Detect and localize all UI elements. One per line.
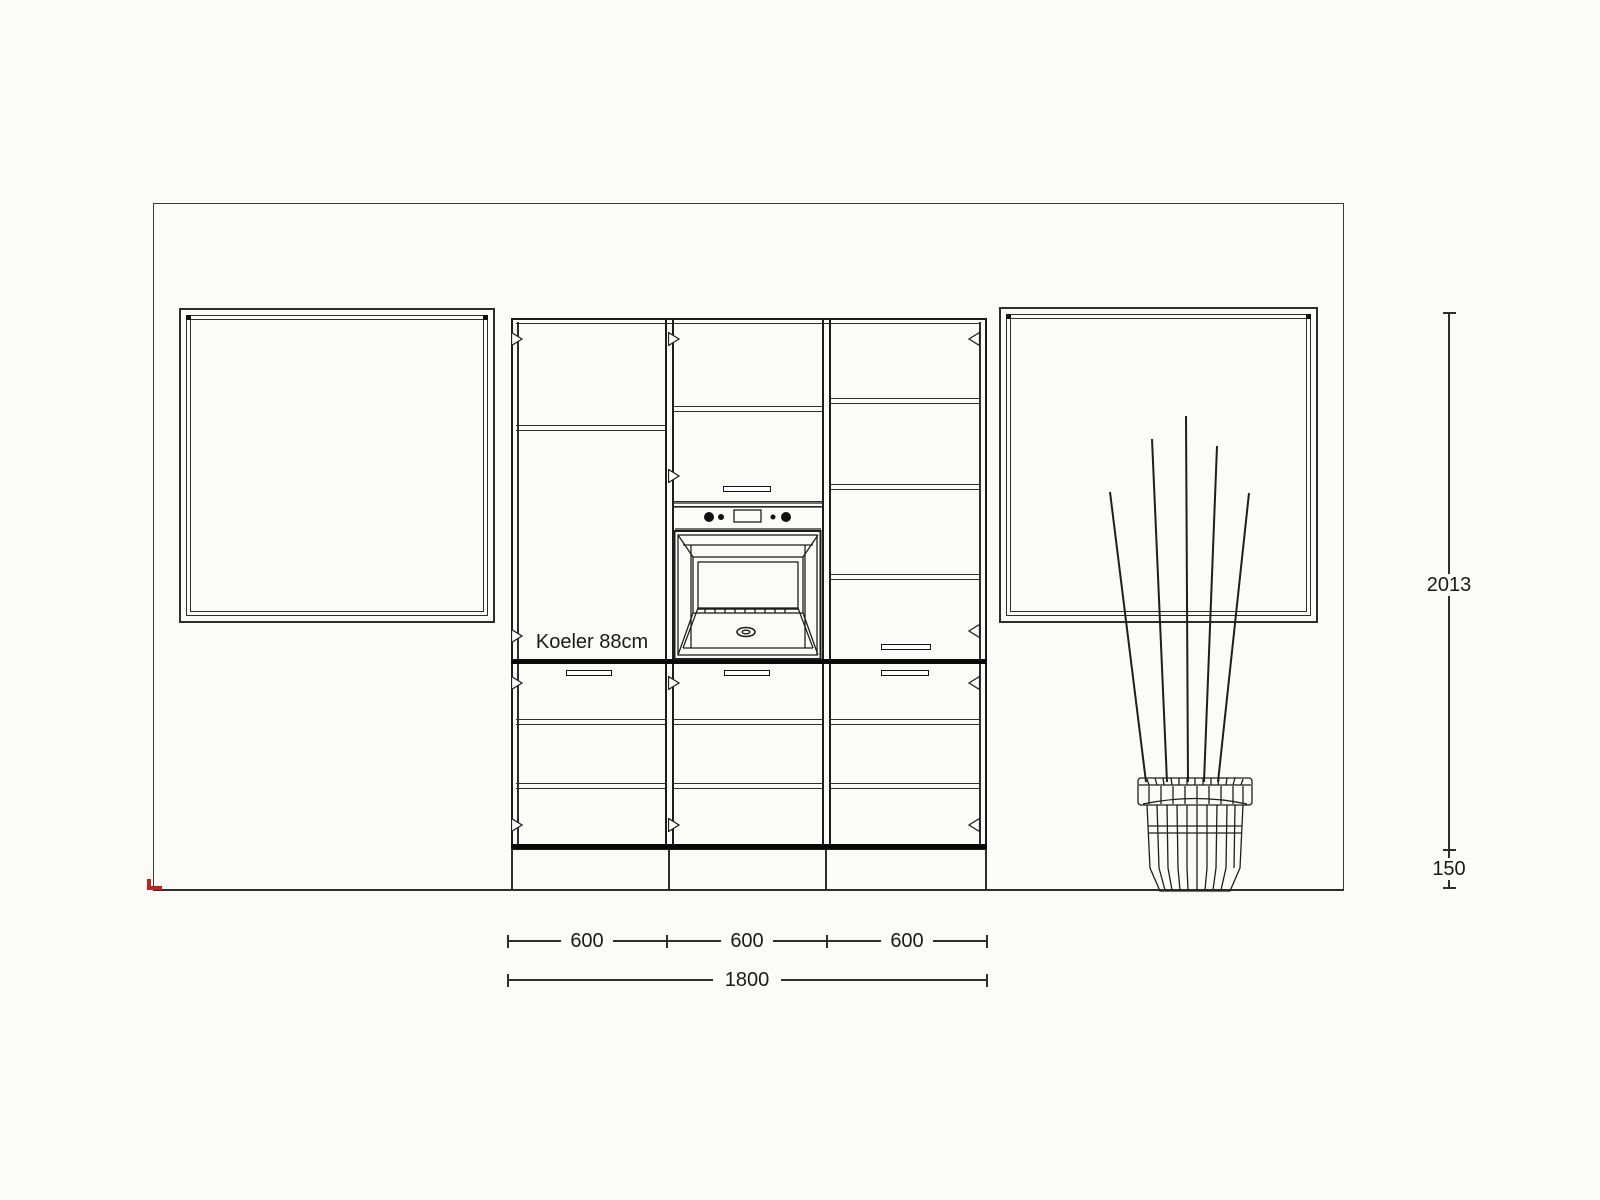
plant-stem [1186,416,1188,782]
door-swing-arrow [668,332,680,346]
plant-stem [1204,446,1217,782]
right-unit-lower-handle [881,670,929,676]
oven-appliance[interactable] [673,502,823,662]
right-unit-upper-handle [881,644,931,650]
oven-knob-left-small [718,514,724,520]
plant[interactable] [1075,400,1275,895]
dim-1800[interactable]: 1800 [713,969,781,991]
window-left-corner-mark [186,315,191,320]
door-swing-arrow [511,629,523,643]
oven-lower-handle [724,670,770,676]
oven-lower-shelf-2 [673,783,822,789]
plant-pot [1138,778,1252,891]
fridge-label: Koeler 88cm [532,631,652,653]
right-unit-lower-shelf-1 [830,719,981,725]
oven-window [693,557,803,613]
plinth-line-right [985,849,987,890]
oven-display [734,510,761,522]
door-swing-arrow [968,676,980,690]
oven-door-handle [737,628,755,637]
oven-knob-right-small [771,515,776,520]
red-corner-mark [146,877,164,892]
plinth-line-mid2 [825,849,827,890]
door-swing-arrow [511,818,523,832]
door-swing-arrow [668,818,680,832]
cad-drawing-canvas: Koeler 88cm [0,0,1600,1200]
door-swing-arrow [668,469,680,483]
plinth-line-mid1 [668,849,670,890]
window-left-pane [190,319,484,612]
oven-knob-right [781,512,791,522]
column-fridge[interactable] [516,318,665,850]
fridge-lower-handle [566,670,612,676]
dim-2013[interactable]: 2013 [1418,574,1480,596]
door-swing-arrow [511,332,523,346]
door-swing-arrow [968,332,980,346]
fridge-lower-shelf-1 [516,719,665,725]
right-unit-shelf-2 [830,484,981,490]
fridge-door-divider [516,425,665,431]
oven-lower-shelf-1 [673,719,822,725]
door-swing-arrow [511,676,523,690]
plant-stem [1152,439,1167,782]
column-right-unit[interactable] [830,318,981,850]
dim-600-1[interactable]: 600 [561,930,613,952]
window-left-corner-mark2 [483,315,488,320]
right-unit-shelf-3 [830,574,981,580]
door-swing-arrow [968,818,980,832]
window-left[interactable] [179,308,495,623]
dim-600-2[interactable]: 600 [721,930,773,952]
oven-knob-left [704,512,714,522]
fridge-lower-shelf-2 [516,783,665,789]
dim-600-3[interactable]: 600 [881,930,933,952]
plant-stem [1110,492,1146,782]
right-unit-shelf-1 [830,398,981,404]
oven-upper-door-handle [723,486,771,492]
right-unit-lower-shelf-2 [830,783,981,789]
window-right-corner-mark [1006,314,1011,319]
oven-top-shelf [673,406,822,412]
dim-150[interactable]: 150 [1425,858,1473,880]
door-swing-arrow [668,676,680,690]
door-swing-arrow [968,624,980,638]
plinth-line-left [511,849,513,890]
window-right-corner-mark2 [1306,314,1311,319]
plant-stem [1218,493,1249,782]
fridge-label-wrap: Koeler 88cm [532,631,652,653]
